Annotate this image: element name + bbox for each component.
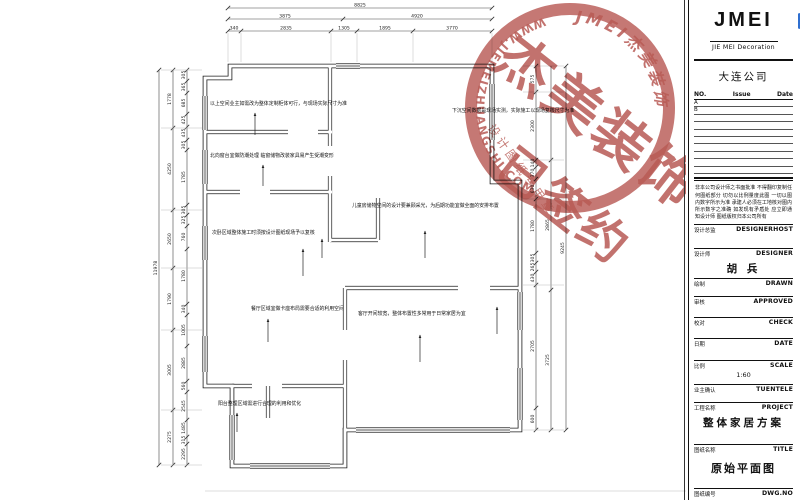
drawing-title: 原始平面图 xyxy=(694,460,793,476)
svg-text:1485: 1485 xyxy=(181,422,187,434)
svg-text:儿童房储物空间的设计要兼顾采光，为后期功能宜做全面的安排布置: 儿童房储物空间的设计要兼顾采光，为后期功能宜做全面的安排布置 xyxy=(352,202,499,209)
svg-text:2275: 2275 xyxy=(167,431,173,443)
divider xyxy=(694,59,793,61)
revision-row xyxy=(694,122,793,129)
field-drawn: 绘制 DRAWN xyxy=(694,278,793,296)
svg-text:305: 305 xyxy=(181,141,187,150)
svg-text:1780: 1780 xyxy=(181,270,187,282)
revision-row xyxy=(694,152,793,159)
svg-text:下沉空间数据是现场实测，实际施工以现场复核尺寸为准: 下沉空间数据是现场实测，实际施工以现场复核尺寸为准 xyxy=(452,107,574,114)
svg-text:3725: 3725 xyxy=(545,354,551,366)
svg-text:1785: 1785 xyxy=(181,171,187,183)
copyright-notes: 非本公司设计师之书面批准 不得翻印复制任何图纸部分 切勿以比例量度此图 一切以图… xyxy=(695,185,792,220)
svg-text:2545: 2545 xyxy=(181,400,187,412)
field-designer: 设计师 DESIGNER 胡 兵 xyxy=(694,248,793,278)
revision-row xyxy=(694,144,793,151)
rev-col-no: NO. xyxy=(694,91,706,98)
field-client-confirm: 业主确认 TUENTELE xyxy=(694,384,793,402)
divider xyxy=(694,180,793,181)
svg-text:2300: 2300 xyxy=(530,120,536,132)
revision-row xyxy=(694,159,793,166)
svg-text:340: 340 xyxy=(230,26,239,32)
revision-row xyxy=(694,115,793,122)
svg-text:340: 340 xyxy=(181,305,187,314)
svg-text:2885: 2885 xyxy=(181,357,187,369)
scale-value: 1:60 xyxy=(694,371,793,379)
svg-text:1790: 1790 xyxy=(167,293,173,305)
svg-text:305: 305 xyxy=(181,71,187,80)
svg-text:305: 305 xyxy=(530,254,536,263)
revision-row: A xyxy=(694,100,793,107)
company-logo: JMEI xyxy=(694,9,793,32)
floor-plan-drawing: 以上空间业主如需改为整体定制柜体可行，与现场实际尺寸为准 下沉空间数据是现场实测… xyxy=(0,0,686,500)
svg-text:435: 435 xyxy=(181,129,187,138)
revision-row xyxy=(694,137,793,144)
stamp-url-text: WWW.JIEMEIZHUANGSHI.COM xyxy=(473,15,548,197)
svg-text:685: 685 xyxy=(181,99,187,108)
title-block: JMEI JIE MEI Decoration 大连公司 NO. Issue D… xyxy=(688,0,798,500)
svg-text:370: 370 xyxy=(530,169,536,178)
drawing-sheet: 以上空间业主如需改为整体定制柜体可行，与现场实际尺寸为准 下沉空间数据是现场实测… xyxy=(0,0,800,500)
rev-col-date: Date xyxy=(777,91,793,98)
annotation-arrows xyxy=(237,113,497,432)
svg-text:1895: 1895 xyxy=(379,26,391,32)
svg-text:11978: 11978 xyxy=(153,261,159,276)
designer-name: 胡 兵 xyxy=(694,261,793,276)
svg-text:9245: 9245 xyxy=(560,242,566,254)
svg-text:1005: 1005 xyxy=(181,324,187,336)
svg-text:365: 365 xyxy=(181,83,187,92)
svg-text:575: 575 xyxy=(530,75,536,84)
svg-text:140: 140 xyxy=(530,159,536,168)
svg-text:1305: 1305 xyxy=(338,26,350,32)
svg-text:600: 600 xyxy=(530,415,536,424)
sheet-edge-line xyxy=(684,0,685,500)
svg-text:4920: 4920 xyxy=(411,14,423,20)
svg-text:265: 265 xyxy=(530,263,536,272)
rev-col-issue: Issue xyxy=(733,91,751,98)
branch-company-name: 大连公司 xyxy=(694,69,793,84)
field-check: 校对 CHECK xyxy=(694,317,793,338)
svg-text:4250: 4250 xyxy=(167,163,173,175)
svg-text:2295: 2295 xyxy=(181,448,187,460)
window-symbols xyxy=(202,63,522,468)
field-date: 日期 DATE xyxy=(694,338,793,360)
svg-text:3770: 3770 xyxy=(446,26,458,32)
revision-row: B xyxy=(694,107,793,114)
svg-text:325: 325 xyxy=(181,216,187,225)
revision-table-header: NO. Issue Date xyxy=(694,91,793,100)
svg-text:3005: 3005 xyxy=(167,364,173,376)
walls xyxy=(202,63,522,468)
svg-text:餐厅区域宜做卡座布局需要合适的利用空间: 餐厅区域宜做卡座布局需要合适的利用空间 xyxy=(251,305,344,312)
divider xyxy=(694,177,793,179)
stamp-big-text: 杰美装饰 xyxy=(483,24,686,223)
company-seal-stamp: 杰美装饰 已签约 设计图纸专用章 JMEI杰美装饰 WWW.JIEMEIZHUA… xyxy=(471,7,686,276)
svg-text:2705: 2705 xyxy=(530,340,536,352)
project-name: 整体家居方案 xyxy=(694,415,793,430)
field-title: 图纸名称 TITLE 原始平面图 xyxy=(694,444,793,488)
svg-text:430: 430 xyxy=(530,274,536,283)
svg-text:315: 315 xyxy=(181,436,187,445)
svg-text:630: 630 xyxy=(530,185,536,194)
stamp-arc-brand-text: JMEI杰美装饰 xyxy=(572,7,672,110)
svg-text:1780: 1780 xyxy=(530,220,536,232)
field-scale: 比例 SCALE 1:60 xyxy=(694,360,793,384)
svg-text:3875: 3875 xyxy=(279,14,291,20)
svg-text:北向窗台宜做防潮处理 临窗储物改装家具易产生受潮变形: 北向窗台宜做防潮处理 临窗储物改装家具易产生受潮变形 xyxy=(210,152,334,159)
revision-row xyxy=(694,130,793,137)
svg-text:2835: 2835 xyxy=(280,26,292,32)
svg-text:425: 425 xyxy=(181,116,187,125)
field-approved: 审核 APPROVED xyxy=(694,296,793,317)
svg-text:客厅开间较宽，整体布置性多常用于日常家居为宜: 客厅开间较宽，整体布置性多常用于日常家居为宜 xyxy=(358,310,466,317)
field-project: 工程名称 PROJECT 整体家居方案 xyxy=(694,402,793,444)
dimension-lines xyxy=(157,6,686,491)
svg-text:次卧区域整体施工时须按设计图纸现场予以复核: 次卧区域整体施工时须按设计图纸现场予以复核 xyxy=(212,229,315,236)
svg-text:305: 305 xyxy=(181,206,187,215)
svg-text:8825: 8825 xyxy=(354,3,366,9)
svg-text:阳台整理区域需进行合理的利用和优化: 阳台整理区域需进行合理的利用和优化 xyxy=(218,400,301,407)
stamp-signed-text: 已签约 xyxy=(486,137,641,275)
svg-text:760: 760 xyxy=(181,233,187,242)
svg-text:以上空间业主如需改为整体定制柜体可行，与现场实际尺寸为准: 以上空间业主如需改为整体定制柜体可行，与现场实际尺寸为准 xyxy=(210,100,347,107)
svg-text:1778: 1778 xyxy=(167,93,173,105)
svg-text:2650: 2650 xyxy=(167,233,173,245)
logo-divider xyxy=(710,41,778,42)
revision-row xyxy=(694,167,793,174)
company-logo-subtitle: JIE MEI Decoration xyxy=(694,44,793,51)
field-designerhost: 设计总监 DESIGNERHOST xyxy=(694,224,793,248)
svg-text:2865: 2865 xyxy=(545,219,551,231)
svg-text:560: 560 xyxy=(181,382,187,391)
